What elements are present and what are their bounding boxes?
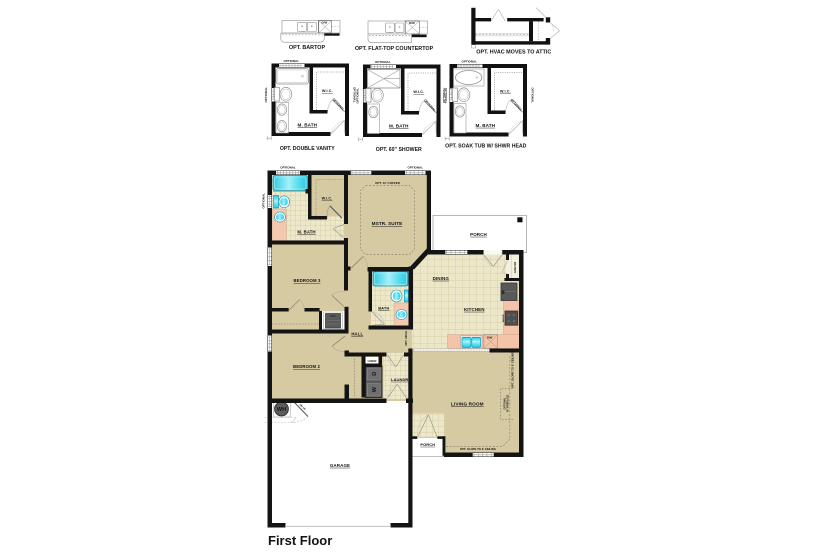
svg-text:M. BATH: M. BATH: [298, 122, 318, 127]
svg-text:MSTR. SUITE: MSTR. SUITE: [372, 221, 403, 226]
svg-text:RANGE: RANGE: [502, 314, 505, 322]
svg-text:KITCHEN: KITCHEN: [464, 307, 485, 312]
svg-text:OPTIONAL: OPTIONAL: [262, 193, 266, 209]
svg-text:M. BATH: M. BATH: [297, 230, 315, 235]
svg-text:OPT. DOUBLE VANITY: OPT. DOUBLE VANITY: [280, 146, 335, 152]
svg-text:GARAGE: GARAGE: [330, 463, 350, 468]
svg-text:OPTIONAL: OPTIONAL: [356, 88, 360, 104]
svg-text:W.I.C.: W.I.C.: [322, 89, 333, 93]
svg-text:OPT. FLAT-TOP COUNTERTOP: OPT. FLAT-TOP COUNTERTOP: [355, 46, 434, 52]
svg-text:M. BATH: M. BATH: [476, 123, 496, 128]
svg-text:D/W: D/W: [322, 21, 328, 25]
svg-text:BATH: BATH: [378, 305, 389, 310]
svg-text:D: D: [372, 372, 378, 376]
svg-text:First Floor: First Floor: [268, 533, 332, 548]
svg-text:D/W: D/W: [409, 21, 415, 25]
svg-text:LIVING ROOM: LIVING ROOM: [451, 402, 484, 407]
svg-text:OPTIONAL: OPTIONAL: [280, 166, 296, 170]
svg-text:OPTIONAL: OPTIONAL: [408, 166, 424, 170]
svg-text:W: W: [372, 386, 378, 392]
svg-text:HALL: HALL: [351, 332, 363, 337]
svg-text:W.I.C.: W.I.C.: [322, 196, 333, 200]
svg-text:OPTIONAL: OPTIONAL: [264, 87, 268, 103]
svg-text:OPTIONAL: OPTIONAL: [284, 59, 300, 63]
svg-text:D/W: D/W: [487, 335, 493, 339]
svg-text:OPT. SLOPE TO 9' CEILING: OPT. SLOPE TO 9' CEILING: [510, 352, 514, 388]
svg-text:OPT. SLOPE TO 9' CEILING: OPT. SLOPE TO 9' CEILING: [460, 447, 496, 451]
svg-text:OPT. HVAC MOVES TO ATTIC: OPT. HVAC MOVES TO ATTIC: [476, 50, 551, 56]
svg-text:WH: WH: [277, 407, 286, 413]
svg-text:OPT. 12' COFFER: OPT. 12' COFFER: [375, 181, 401, 185]
svg-text:OPTIONAL: OPTIONAL: [504, 397, 507, 409]
svg-text:OPTIONAL: OPTIONAL: [375, 60, 391, 64]
svg-text:OPT. ARCH: OPT. ARCH: [404, 331, 408, 345]
svg-text:HVAC: HVAC: [330, 315, 337, 318]
svg-text:M. BATH: M. BATH: [389, 123, 409, 128]
svg-text:LAUNDRY: LAUNDRY: [391, 377, 411, 382]
svg-text:PORCH: PORCH: [470, 232, 487, 237]
svg-text:OPT. 60" SHOWER: OPT. 60" SHOWER: [376, 147, 422, 153]
svg-text:BEDROOM 2: BEDROOM 2: [293, 364, 320, 369]
svg-text:OPTIONAL: OPTIONAL: [442, 87, 446, 103]
svg-text:PANTRY: PANTRY: [513, 262, 517, 274]
svg-text:W.I.C.: W.I.C.: [413, 90, 424, 94]
svg-text:LINEN: LINEN: [368, 359, 377, 363]
svg-text:OPTIONAL: OPTIONAL: [462, 59, 478, 63]
svg-text:BEDROOM 3: BEDROOM 3: [294, 278, 321, 283]
svg-text:DINING: DINING: [433, 276, 450, 281]
svg-text:OPTIONAL: OPTIONAL: [531, 88, 535, 104]
svg-text:OPT. BARTOP: OPT. BARTOP: [289, 45, 326, 51]
svg-text:48" FIREPLACE: 48" FIREPLACE: [507, 394, 510, 412]
svg-text:PORCH: PORCH: [420, 442, 435, 447]
svg-text:OPT. SOAK TUB W/ SHWR HEAD: OPT. SOAK TUB W/ SHWR HEAD: [445, 144, 527, 150]
svg-text:W.I.C.: W.I.C.: [500, 90, 511, 94]
